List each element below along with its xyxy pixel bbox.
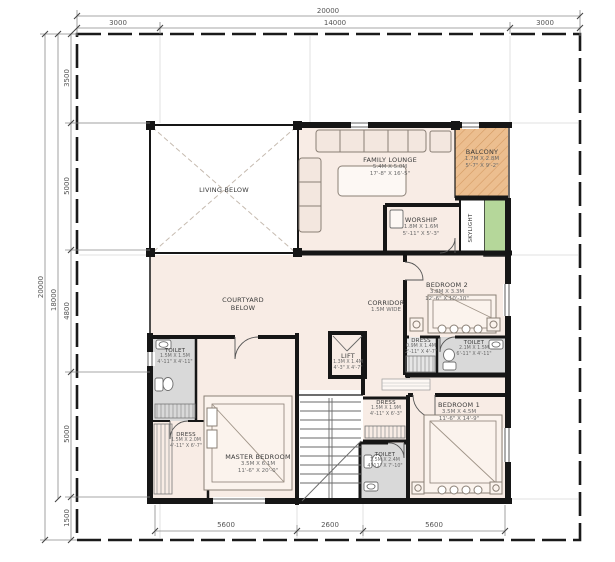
room-label-worship: WORSHIP 1.8M X 1.6M 5'-11" X 5'-3" <box>403 216 440 237</box>
dim-left-seg-3: 4800 <box>63 302 71 320</box>
dim-left-seg-5: 1500 <box>63 509 71 527</box>
room-label-family-lounge: FAMILY LOUNGE 5.4M X 5.0M 17'-8" X 16'-5… <box>363 156 417 177</box>
dim-bottom-seg-2: 2600 <box>321 521 339 529</box>
dim-left-outer: 20000 <box>37 276 45 298</box>
room-label-dress1: DRESS 1.5M X 1.9M 4'-11" X 6'-3" <box>370 400 402 418</box>
dim-top-total: 20000 <box>317 7 339 15</box>
dim-top-seg-3: 3000 <box>536 19 554 27</box>
floor-plan-drawing: 20000 3000 14000 3000 20000 18000 3500 5… <box>0 0 615 562</box>
room-label-lift: LIFT 1.3M X 1.4M 4'-3" X 4'-7" <box>333 352 363 372</box>
room-label-toilet1: TOILET 1.5M X 2.4M 4'-11" X 7'-10" <box>367 452 402 470</box>
plan-graphics <box>0 0 615 562</box>
room-label-living: LIVING BELOW <box>199 186 249 194</box>
dim-left-inner: 18000 <box>50 289 58 311</box>
room-label-dress2: DRESS 0.9M X 1.4M 2'-11" X 4'-7" <box>405 338 437 356</box>
room-label-dress-master: DRESS 1.5M X 2.0M 4'-11" X 6'-7" <box>170 432 202 450</box>
room-label-corridor: CORRIDOR 1.5M WIDE <box>368 299 405 314</box>
dim-top-seg-2: 14000 <box>324 19 346 27</box>
room-label-courtyard: COURTYARD BELOW <box>222 296 264 312</box>
room-label-bedroom1: BEDROOM 1 3.5M X 4.5M 11'-6" X 14'-9" <box>438 401 480 422</box>
room-label-bedroom2: BEDROOM 2 3.8M X 3.3M 12'-6" X 10'-10" <box>425 281 469 302</box>
room-label-balcony: BALCONY 1.7M X 2.8M 5'-7" X 9'-2" <box>465 148 499 169</box>
room-label-toilet-master: TOILET 1.5M X 1.5M 4'-11" X 4'-11" <box>157 348 192 366</box>
dim-bottom-seg-1: 5600 <box>217 521 235 529</box>
room-label-skylight: SKYLIGHT <box>468 213 474 242</box>
room-label-master-bedroom: MASTER BEDROOM 3.5M X 6.1M 11'-6" X 20'-… <box>225 453 291 474</box>
dim-top-seg-1: 3000 <box>109 19 127 27</box>
dim-left-seg-2: 5000 <box>63 177 71 195</box>
dim-left-seg-1: 3500 <box>63 69 71 87</box>
dim-bottom-seg-3: 5600 <box>425 521 443 529</box>
dim-left-seg-4: 5000 <box>63 425 71 443</box>
room-label-toilet2: TOILET 2.1M X 1.5M 6'-11" X 4'-11" <box>456 340 491 358</box>
